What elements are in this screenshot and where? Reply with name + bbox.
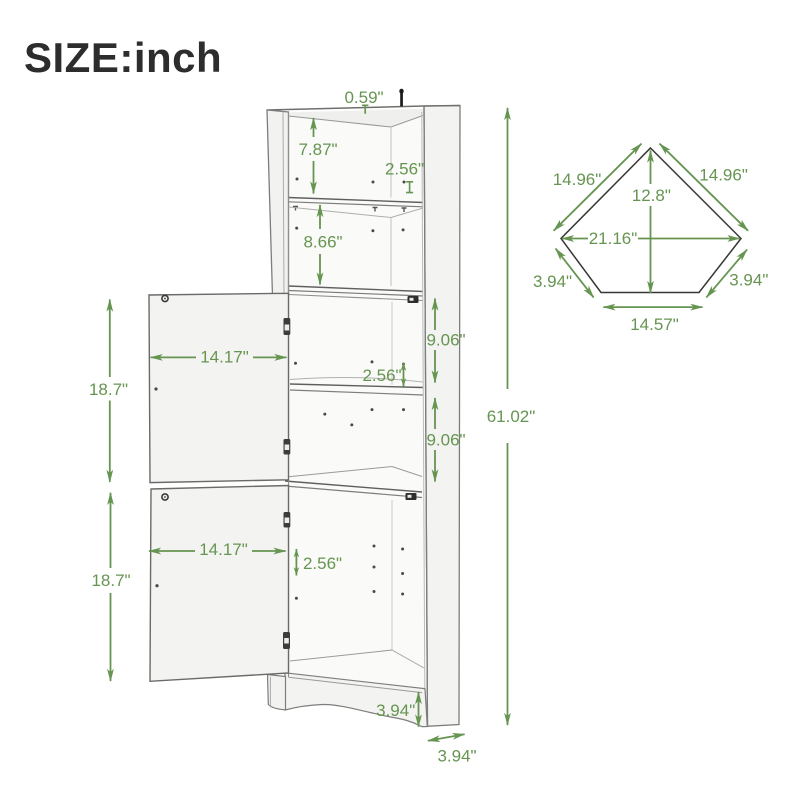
svg-text:21.16": 21.16" — [589, 229, 638, 248]
svg-text:14.96": 14.96" — [553, 170, 602, 189]
svg-text:2.56": 2.56" — [303, 554, 342, 573]
svg-text:18.7": 18.7" — [89, 380, 128, 399]
svg-text:14.17": 14.17" — [199, 540, 248, 559]
svg-text:14.57": 14.57" — [630, 315, 679, 334]
svg-text:18.7": 18.7" — [91, 571, 130, 590]
svg-text:14.17": 14.17" — [200, 348, 249, 367]
svg-text:0.59": 0.59" — [344, 88, 383, 107]
svg-text:3.94": 3.94" — [729, 271, 768, 290]
svg-text:3.94": 3.94" — [533, 272, 572, 291]
svg-text:7.87": 7.87" — [298, 140, 337, 159]
svg-text:8.66": 8.66" — [303, 233, 342, 252]
svg-text:9.06": 9.06" — [426, 431, 465, 450]
svg-text:12.8": 12.8" — [632, 186, 671, 205]
svg-text:14.96": 14.96" — [699, 166, 748, 185]
svg-text:SIZE:inch: SIZE:inch — [24, 34, 222, 81]
svg-text:2.56": 2.56" — [385, 160, 424, 179]
svg-text:3.94": 3.94" — [376, 701, 415, 720]
svg-text:61.02": 61.02" — [487, 407, 536, 426]
svg-text:2.56": 2.56" — [362, 366, 401, 385]
svg-text:9.06": 9.06" — [426, 331, 465, 350]
svg-text:3.94": 3.94" — [437, 747, 476, 766]
